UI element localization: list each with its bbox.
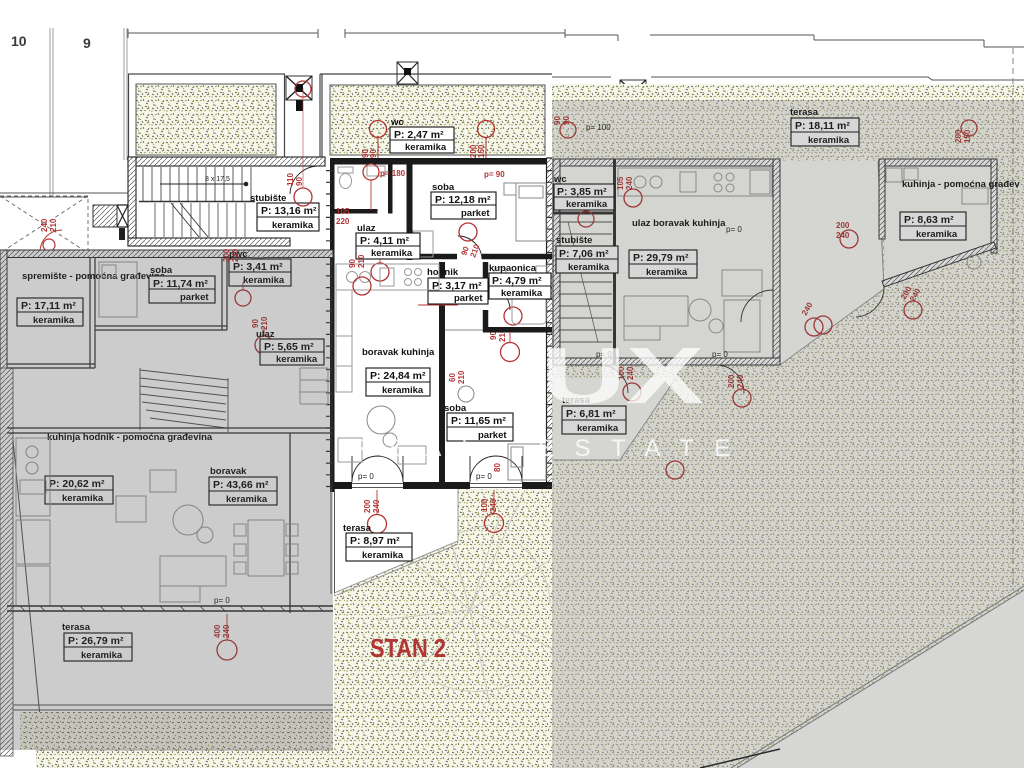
- svg-text:240: 240: [489, 498, 498, 512]
- svg-text:keramika: keramika: [362, 550, 404, 561]
- svg-text:240: 240: [372, 499, 381, 513]
- svg-text:90: 90: [348, 259, 357, 268]
- svg-text:9: 9: [83, 35, 91, 51]
- svg-text:boravak kuhinja: boravak kuhinja: [362, 347, 435, 358]
- svg-text:P: 2,47 m²: P: 2,47 m²: [394, 129, 444, 141]
- svg-text:8 x 17,5: 8 x 17,5: [205, 176, 230, 183]
- svg-text:p= 180: p= 180: [380, 169, 406, 178]
- svg-text:200: 200: [363, 499, 372, 513]
- svg-text:P: 12,18 m²: P: 12,18 m²: [435, 194, 491, 206]
- svg-text:P: 4,11 m²: P: 4,11 m²: [360, 235, 410, 247]
- svg-text:110: 110: [286, 173, 295, 186]
- svg-text:parket: parket: [454, 293, 483, 304]
- svg-text:keramika: keramika: [272, 220, 314, 231]
- svg-text:100: 100: [480, 498, 489, 512]
- svg-text:220: 220: [336, 217, 350, 226]
- svg-text:LUX: LUX: [470, 331, 704, 420]
- svg-text:10: 10: [11, 33, 27, 49]
- svg-text:p= 0: p= 0: [358, 472, 374, 481]
- svg-text:keramika: keramika: [405, 142, 447, 153]
- svg-text:210: 210: [49, 218, 58, 232]
- svg-text:P: 13,16 m²: P: 13,16 m²: [261, 205, 317, 217]
- svg-text:keramika: keramika: [501, 288, 543, 299]
- svg-text:ESTATE: ESTATE: [538, 435, 751, 462]
- svg-text:STAN 2: STAN 2: [370, 633, 446, 663]
- svg-text:parket: parket: [461, 208, 490, 219]
- svg-text:stubište: stubište: [250, 193, 286, 204]
- svg-text:REAL: REAL: [352, 435, 495, 462]
- svg-text:ulaz: ulaz: [357, 223, 376, 234]
- svg-text:wc: wc: [390, 117, 404, 128]
- svg-text:80: 80: [493, 463, 502, 472]
- svg-text:p= 90: p= 90: [484, 170, 505, 179]
- svg-text:soba: soba: [432, 182, 455, 193]
- svg-text:hodnik: hodnik: [427, 267, 459, 278]
- svg-text:240: 240: [40, 218, 49, 232]
- svg-text:kupaonica: kupaonica: [489, 263, 537, 274]
- svg-text:soba: soba: [444, 403, 467, 414]
- svg-text:210: 210: [357, 254, 366, 268]
- svg-text:keramika: keramika: [371, 248, 413, 259]
- svg-text:p= 0: p= 0: [476, 472, 492, 481]
- svg-text:P: 8,97 m²: P: 8,97 m²: [350, 535, 400, 547]
- svg-text:P: 4,79 m²: P: 4,79 m²: [492, 275, 542, 287]
- svg-text:90: 90: [369, 149, 378, 158]
- svg-text:105: 105: [336, 207, 350, 216]
- svg-text:terasa: terasa: [343, 523, 372, 534]
- svg-text:P: 3,17 m²: P: 3,17 m²: [432, 280, 482, 292]
- svg-text:60: 60: [448, 373, 457, 382]
- svg-text:210: 210: [457, 370, 466, 384]
- svg-text:keramika: keramika: [382, 385, 424, 396]
- svg-text:150: 150: [477, 144, 486, 158]
- svg-text:P: 24,84 m²: P: 24,84 m²: [370, 370, 426, 382]
